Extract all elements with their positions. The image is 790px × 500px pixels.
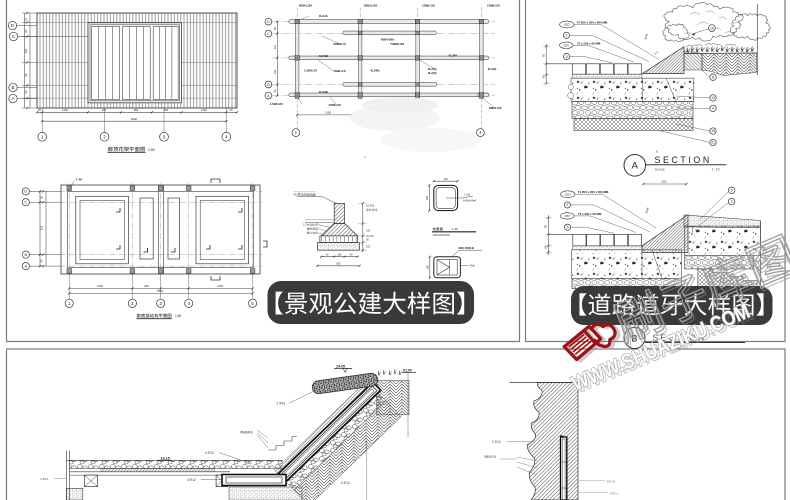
svg-text:C: C	[267, 32, 270, 36]
svg-text:100: 100	[366, 230, 371, 233]
svg-text:C: C	[12, 34, 15, 39]
svg-text:SCALE: SCALE	[655, 168, 665, 172]
svg-text:L5WL/1X: L5WL/1X	[304, 69, 317, 73]
svg-text:D: D	[267, 20, 270, 24]
svg-text:KBKL/20: KBKL/20	[489, 106, 502, 110]
svg-text:SECTION: SECTION	[655, 155, 712, 165]
svg-text:4 Mx: 4 Mx	[469, 264, 475, 268]
svg-text:300: 300	[662, 180, 667, 184]
svg-text:155: 155	[40, 225, 44, 230]
svg-text:4 Φ12: 4 Φ12	[40, 477, 49, 481]
svg-text:SO2: SO2	[565, 192, 571, 196]
svg-text:KBKL/3A: KBKL/3A	[299, 4, 313, 8]
svg-text:74 250 x 300 x 600 MM: 74 250 x 300 x 600 MM	[578, 190, 609, 194]
svg-text:4L24B: 4L24B	[319, 90, 329, 94]
svg-text:4L2(4): 4L2(4)	[428, 71, 437, 75]
svg-text:134: 134	[274, 69, 277, 74]
svg-text:4 Φ12: 4 Φ12	[205, 451, 214, 455]
svg-text:KBKH/3A: KBKH/3A	[381, 37, 395, 41]
svg-text:-0.150: -0.150	[366, 234, 374, 238]
svg-text:KBKL/3A: KBKL/3A	[364, 4, 378, 8]
svg-text:2 Φ12: 2 Φ12	[277, 402, 286, 406]
svg-text:B: B	[12, 85, 15, 90]
svg-text:2: 2	[565, 34, 567, 38]
svg-text:21: 21	[711, 141, 715, 145]
svg-text:75 x 230 x 60 MM: 75 x 230 x 60 MM	[578, 212, 602, 216]
svg-text:4L2(4): 4L2(4)	[488, 67, 497, 71]
svg-text:Φ8@400: Φ8@400	[240, 430, 253, 434]
svg-text:D: D	[11, 23, 14, 28]
svg-text:1400: 1400	[62, 108, 68, 112]
svg-text:5: 5	[567, 226, 569, 230]
svg-text:1:50: 1:50	[175, 314, 181, 318]
svg-text:2: 2	[103, 134, 106, 139]
svg-text:500: 500	[336, 263, 341, 266]
svg-text:1: 1	[41, 134, 44, 139]
svg-text:15WL/1X: 15WL/1X	[333, 69, 346, 73]
svg-text:2100: 2100	[97, 284, 103, 288]
svg-text:13: 13	[711, 96, 715, 100]
svg-text:4L24B: 4L24B	[371, 69, 381, 73]
svg-text:1300: 1300	[201, 108, 207, 112]
svg-text:140: 140	[426, 195, 429, 200]
svg-text:1:10: 1:10	[452, 227, 458, 231]
svg-text:800: 800	[164, 108, 169, 112]
svg-text:1 : 10: 1 : 10	[712, 168, 720, 172]
svg-text:140: 140	[426, 265, 429, 270]
svg-text:3: 3	[163, 134, 166, 139]
svg-text:1:2: 1:2	[303, 223, 307, 227]
svg-text:4: 4	[225, 134, 228, 139]
svg-text:1:50: 1:50	[148, 148, 155, 152]
svg-text:C: C	[24, 201, 27, 205]
svg-text:40: 40	[294, 193, 298, 197]
svg-text:75 x 230 x 60 MM: 75 x 230 x 60 MM	[577, 41, 601, 45]
svg-text:15WL/3A: 15WL/3A	[422, 4, 436, 8]
svg-text:4: 4	[712, 107, 714, 111]
svg-text:2 Φ12: 2 Φ12	[492, 440, 501, 444]
svg-text:74 250 x 300 x 600 MM: 74 250 x 300 x 600 MM	[577, 21, 608, 25]
svg-text:Φ8Φ100: Φ8Φ100	[484, 455, 496, 459]
svg-text:L=W: L=W	[465, 192, 471, 196]
svg-text:860: 860	[134, 108, 139, 112]
svg-text:A: A	[12, 96, 15, 101]
svg-text:5: 5	[731, 189, 733, 193]
svg-text:5500: 5500	[157, 289, 163, 293]
svg-text:100X100X5X8: 100X100X5X8	[432, 233, 450, 237]
svg-text:4L24A: 4L24A	[319, 14, 329, 18]
svg-text:14.05: 14.05	[336, 364, 345, 368]
svg-text:15WL/2X: 15WL/2X	[328, 103, 341, 107]
svg-text:CB7: CB7	[564, 214, 570, 218]
svg-text:121: 121	[274, 44, 277, 49]
svg-text:195: 195	[24, 48, 28, 53]
svg-text:2100: 2100	[325, 110, 331, 114]
svg-text:U1.00: U1.00	[403, 368, 412, 372]
svg-text:CB7: CB7	[563, 44, 569, 48]
svg-text:1.5WL/2X: 1.5WL/2X	[270, 102, 283, 106]
svg-text:4 Φ12: 4 Φ12	[341, 481, 350, 485]
svg-text:2: 2	[731, 200, 733, 204]
svg-text:B: B	[25, 253, 28, 257]
svg-text:A: A	[632, 161, 639, 172]
svg-text:±0.000: ±0.000	[366, 204, 375, 208]
svg-text:15: 15	[711, 129, 715, 133]
svg-text:SO2: SO2	[564, 23, 570, 27]
svg-text:3XBKL/3: 3XBKL/3	[333, 42, 346, 46]
svg-text:2130: 2130	[217, 284, 223, 288]
svg-text:160: 160	[337, 253, 342, 256]
svg-text:7.48: 7.48	[76, 178, 82, 182]
svg-text:4640: 4640	[131, 117, 138, 121]
svg-text:A: A	[25, 264, 28, 268]
svg-text:945: 945	[144, 284, 149, 288]
svg-text:15WL/3A: 15WL/3A	[487, 4, 501, 8]
svg-text:1b.15: 1b.15	[161, 456, 170, 460]
svg-text:M10 200/1B: M10 200/1B	[459, 246, 474, 250]
svg-text:2: 2	[566, 203, 568, 207]
svg-text:8: 8	[712, 75, 714, 79]
svg-text:150: 150	[366, 246, 371, 249]
svg-text:TXBKL/20: TXBKL/20	[390, 42, 405, 46]
svg-text:140: 140	[444, 178, 449, 181]
svg-text:4 Φ12: 4 Φ12	[187, 478, 196, 482]
svg-text:4L246: 4L246	[449, 54, 458, 58]
svg-text:D: D	[24, 190, 27, 194]
svg-text:4L24B: 4L24B	[319, 54, 329, 58]
svg-text:5: 5	[566, 55, 568, 59]
svg-text:140x140x4: 140x140x4	[463, 199, 477, 203]
svg-text:16: 16	[710, 26, 714, 30]
